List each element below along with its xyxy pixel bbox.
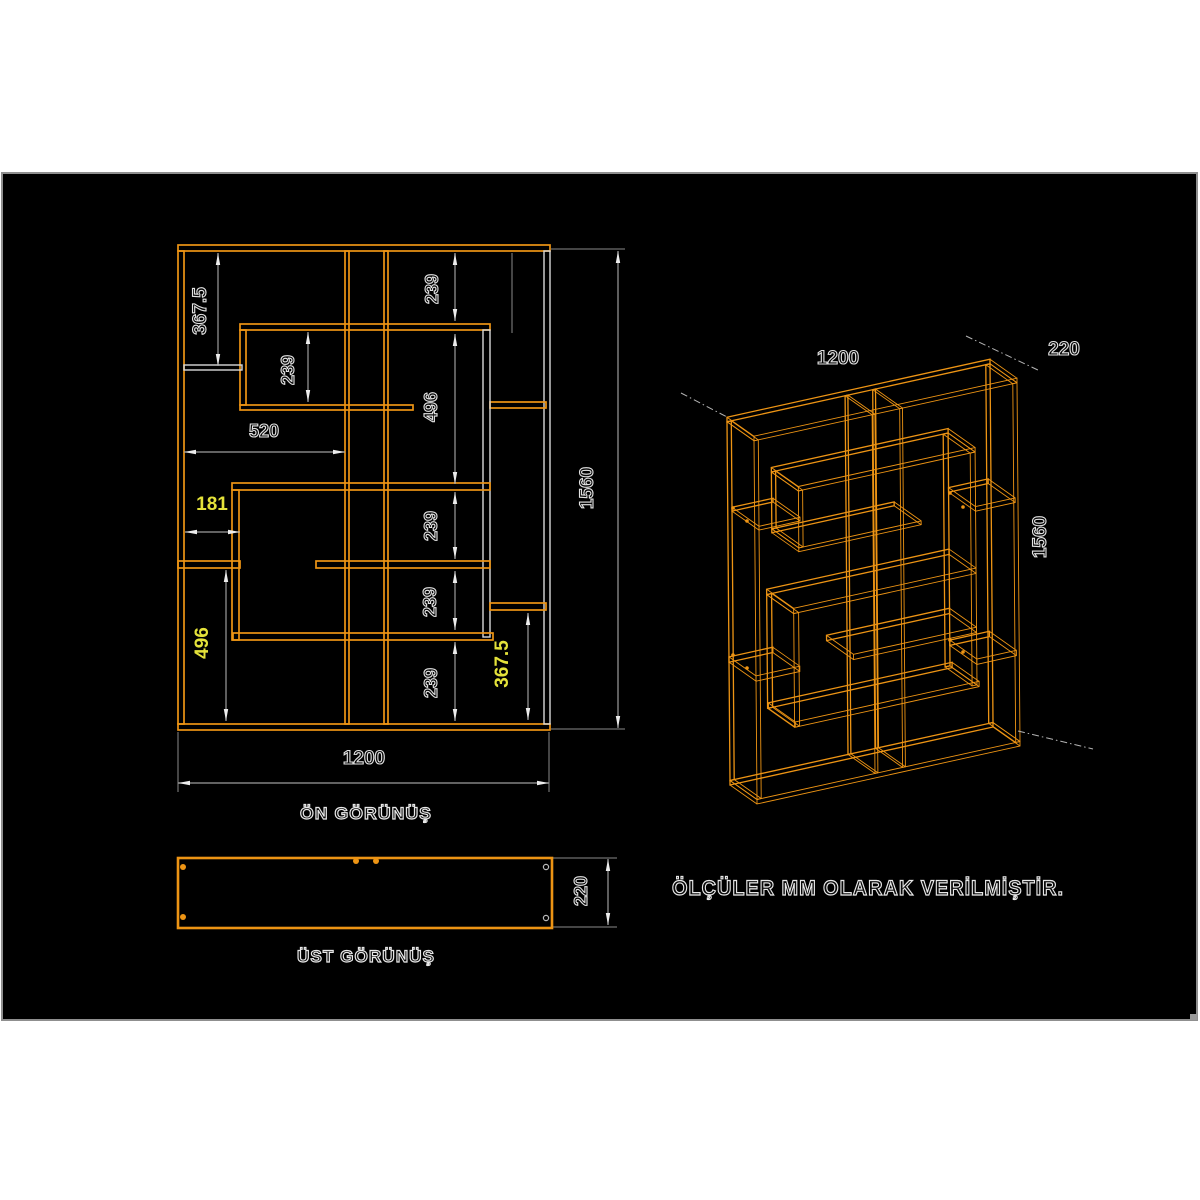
cad-screenshot: 367.5239239496239239239367.5496520181156… xyxy=(0,0,1200,1200)
dim-value-239: 239 xyxy=(422,274,442,304)
front-view-label: ÖN GÖRÜNÜŞ xyxy=(300,804,432,823)
dim-value-239: 239 xyxy=(421,668,441,698)
iso-dim-220: 220 xyxy=(1048,339,1080,360)
dim-value-239: 239 xyxy=(420,587,440,617)
iso-dowel-dot xyxy=(961,650,965,654)
iso-dim-1200: 1200 xyxy=(817,348,859,369)
iso-dim-1560: 1560 xyxy=(1030,516,1051,558)
dim-value-181: 181 xyxy=(196,494,228,515)
iso-dowel-dot xyxy=(948,638,952,642)
dowel-dot xyxy=(353,858,359,864)
dim-value-1200: 1200 xyxy=(343,748,385,769)
canvas-corner-nub xyxy=(1190,1014,1197,1020)
technical-drawing: 367.5239239496239239239367.5496520181156… xyxy=(0,0,1200,1200)
dowel-dot xyxy=(180,914,186,920)
dowel-dot xyxy=(180,864,186,870)
iso-dowel-dot xyxy=(731,653,735,657)
dowel-dot xyxy=(373,858,379,864)
units-note-text: ÖLÇÜLER MM OLARAK VERİLMİŞTİR. xyxy=(672,877,1064,900)
dim-value-239: 239 xyxy=(421,511,441,541)
iso-dowel-dot xyxy=(745,666,749,670)
top-view-label: ÜST GÖRÜNÜŞ xyxy=(297,947,435,966)
dim-value-520: 520 xyxy=(249,421,279,441)
dim-value-1560: 1560 xyxy=(577,467,598,509)
iso-dowel-dot xyxy=(745,519,749,523)
dim-value-220: 220 xyxy=(571,876,591,906)
dim-value-367.5: 367.5 xyxy=(190,287,211,335)
iso-dowel-dot xyxy=(731,506,735,510)
dim-value-496: 496 xyxy=(421,392,441,422)
dim-value-239: 239 xyxy=(278,355,298,385)
iso-dowel-dot xyxy=(948,491,952,495)
dim-value-367.5: 367.5 xyxy=(492,640,513,688)
units-note: ÖLÇÜLER MM OLARAK VERİLMİŞTİR. xyxy=(672,877,1064,900)
dim-value-496: 496 xyxy=(192,627,213,659)
iso-dowel-dot xyxy=(961,505,965,509)
